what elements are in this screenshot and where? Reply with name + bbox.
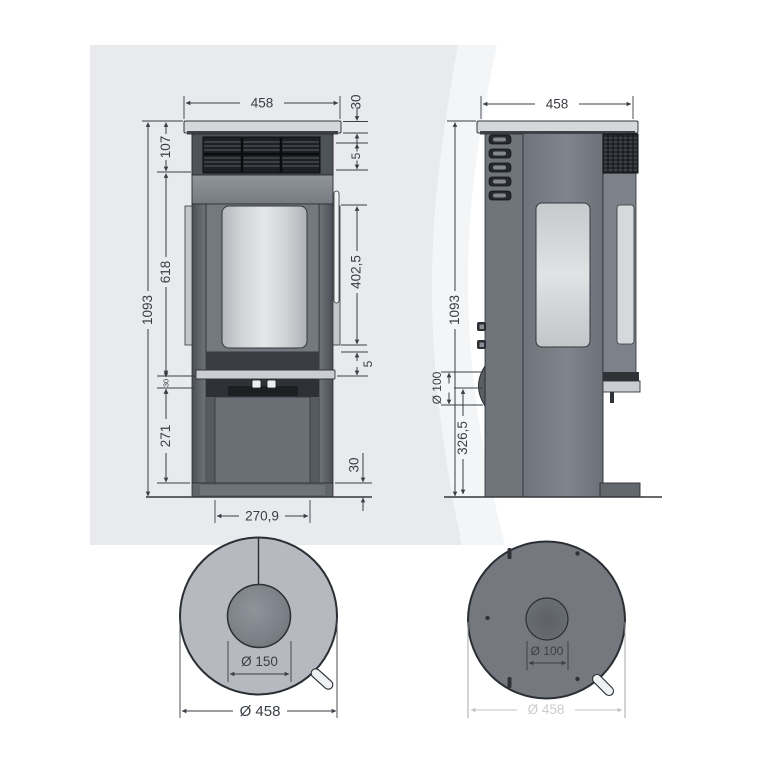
- dim-top-outer-diameter: Ø 458: [240, 703, 281, 720]
- bottom-view-air-inlet: [526, 598, 568, 640]
- front-knob-right: [267, 380, 276, 388]
- front-base-door: [215, 397, 310, 483]
- side-window: [536, 203, 590, 347]
- dim-top-flue-diameter: Ø 150: [241, 654, 278, 669]
- front-shelf: [196, 370, 335, 379]
- dim-front-base-section: 271: [158, 425, 173, 448]
- front-knob-left: [252, 380, 261, 388]
- top-view-flue-collar: [228, 585, 291, 648]
- dim-front-total-height: 1093: [140, 295, 155, 325]
- dim-front-door-section: 618: [158, 261, 173, 284]
- dim-front-door-gap: 5: [361, 360, 375, 367]
- dim-bottom-outer-diameter: Ø 458: [528, 702, 565, 717]
- front-air-lever: [228, 386, 298, 396]
- front-door-bottom-band: [206, 352, 319, 370]
- front-right-column: [319, 204, 333, 483]
- front-door-glass: [222, 206, 307, 348]
- side-handle-tick: [610, 392, 614, 403]
- dim-front-top-section: 107: [158, 136, 173, 159]
- dim-front-glass-height: 402,5: [349, 255, 364, 289]
- technical-drawing: 458 30 107 5 618 402,5 1093 30 271 5 30 …: [0, 0, 759, 759]
- dim-side-total-height: 1093: [447, 295, 462, 325]
- dim-front-width: 458: [251, 96, 274, 111]
- dim-front-grille-gap: 5: [349, 152, 363, 159]
- top-view-handle: [309, 667, 334, 691]
- side-elevation-view: [477, 121, 640, 497]
- dim-front-plinth-height: 30: [347, 457, 362, 472]
- dim-side-inlet-diameter: Ø 100: [430, 371, 444, 404]
- side-front-foot: [600, 483, 640, 497]
- front-shoulder-band: [192, 175, 333, 204]
- side-front-glass-sliver: [617, 205, 634, 344]
- top-plan-view: [180, 538, 337, 695]
- front-door-handle: [334, 191, 339, 303]
- bottom-plan-view: [468, 542, 625, 699]
- dim-bottom-inlet-diameter: Ø 100: [531, 644, 564, 658]
- side-shelf: [603, 381, 640, 392]
- dim-front-plate-height: 30: [349, 94, 364, 109]
- front-left-column: [192, 204, 206, 483]
- front-elevation-view: [184, 121, 341, 497]
- dim-front-door-width: 270,9: [245, 509, 279, 524]
- bottom-view-handle: [591, 673, 616, 698]
- dim-front-shelf-thickness: 30: [162, 379, 171, 387]
- dim-side-inlet-center-height: 326,5: [455, 421, 470, 455]
- front-plinth-inner: [200, 485, 325, 495]
- side-back-panel: [485, 134, 523, 497]
- drawing-canvas: 458 30 107 5 618 402,5 1093 30 271 5 30 …: [0, 0, 759, 759]
- dim-side-width: 458: [546, 97, 569, 112]
- side-door-bottom-band: [603, 372, 639, 381]
- front-side-glass-left: [185, 206, 192, 345]
